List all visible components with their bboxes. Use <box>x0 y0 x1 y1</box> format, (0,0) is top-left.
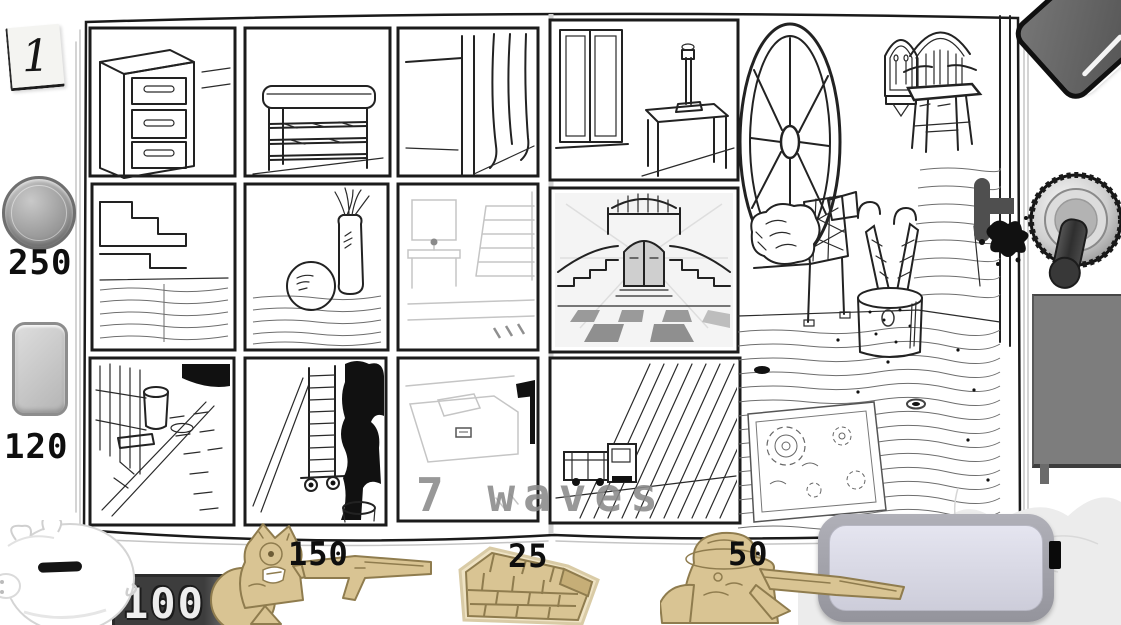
panel-faded-hallway[interactable] <box>398 184 538 350</box>
panel-vases[interactable] <box>245 184 388 350</box>
cat-soldier-price: 150 <box>288 538 349 570</box>
eraser-price: 120 <box>4 430 68 464</box>
coin-item-button[interactable] <box>2 176 76 250</box>
shop-item-scout-soldier[interactable] <box>660 525 910 625</box>
panel-dresser-hallway[interactable] <box>90 28 235 178</box>
panel-alley-fence[interactable] <box>90 358 234 525</box>
panel-window-side-table[interactable] <box>550 20 738 180</box>
scout-soldier-price: 50 <box>728 538 769 570</box>
panel-grand-staircase[interactable] <box>550 188 738 352</box>
panel-shoe-bench[interactable] <box>245 28 390 176</box>
game-screen: 7 waves 1 250 120 100 <box>0 0 1121 625</box>
wave-banner: 7 waves <box>416 468 666 522</box>
battery-terminal <box>1049 541 1061 569</box>
panel-alley-cart-inkblot[interactable] <box>245 358 386 525</box>
eraser-item-button[interactable] <box>12 322 68 416</box>
panel-staircase-corner[interactable] <box>92 184 235 350</box>
panel-doorway-curtain[interactable] <box>398 28 538 176</box>
piggy-bank-button[interactable] <box>0 520 140 625</box>
toggle-switch-button[interactable] <box>1028 168 1121 294</box>
brick-wall-price: 25 <box>508 540 549 572</box>
level-sticky-note: 1 <box>5 24 64 91</box>
metal-plate-item-button[interactable] <box>1032 294 1121 468</box>
coin-price: 250 <box>8 246 72 280</box>
level-number: 1 <box>21 30 51 82</box>
